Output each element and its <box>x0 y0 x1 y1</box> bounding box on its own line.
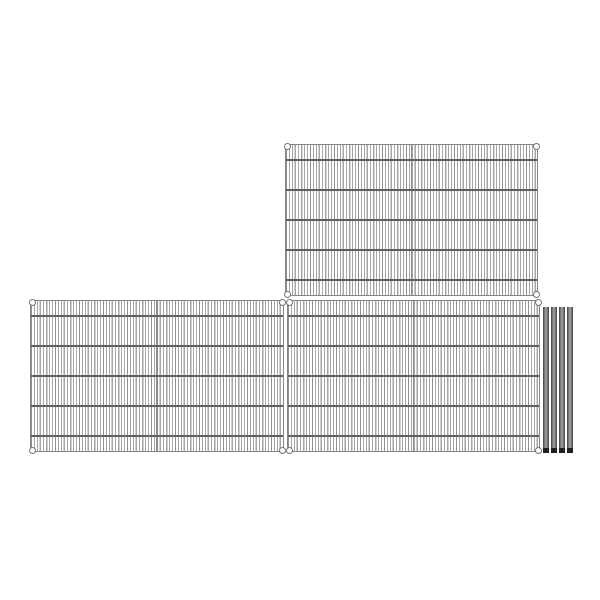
shelf-cross-wire <box>31 375 283 377</box>
product-image <box>0 0 600 600</box>
shelf-cross-wire <box>288 345 539 347</box>
corner-collar <box>29 447 36 454</box>
corner-collar <box>533 291 540 298</box>
shelving-post <box>567 307 573 453</box>
shelf-cross-wire <box>286 159 537 161</box>
corner-collar <box>535 299 542 306</box>
post-foot <box>567 448 574 453</box>
shelving-post <box>551 307 557 453</box>
wire-shelf-panel-bottom-left <box>30 300 284 452</box>
corner-collar <box>29 299 36 306</box>
wire-shelf-panel-bottom-right <box>287 300 540 452</box>
shelf-cross-wire <box>288 435 539 437</box>
corner-collar <box>279 447 286 454</box>
shelving-posts-group <box>543 307 573 453</box>
shelf-cross-wire <box>31 435 283 437</box>
corner-collar <box>535 447 542 454</box>
shelving-post <box>559 307 565 453</box>
post-foot <box>543 448 550 453</box>
post-foot <box>559 448 566 453</box>
post-foot <box>551 448 558 453</box>
corner-collar <box>286 299 293 306</box>
corner-collar <box>284 143 291 150</box>
shelf-cross-wire <box>31 345 283 347</box>
wire-shelf-panel-top <box>285 144 538 296</box>
shelf-cross-wire <box>286 279 537 281</box>
shelving-post <box>543 307 549 453</box>
shelf-cross-wire <box>286 189 537 191</box>
shelf-cross-wire <box>288 405 539 407</box>
corner-collar <box>284 291 291 298</box>
corner-collar <box>286 447 293 454</box>
shelf-cross-wire <box>286 219 537 221</box>
corner-collar <box>279 299 286 306</box>
shelf-cross-wire <box>286 249 537 251</box>
shelf-cross-wire <box>31 315 283 317</box>
shelf-cross-wire <box>288 315 539 317</box>
corner-collar <box>533 143 540 150</box>
shelf-cross-wire <box>288 375 539 377</box>
shelf-cross-wire <box>31 405 283 407</box>
